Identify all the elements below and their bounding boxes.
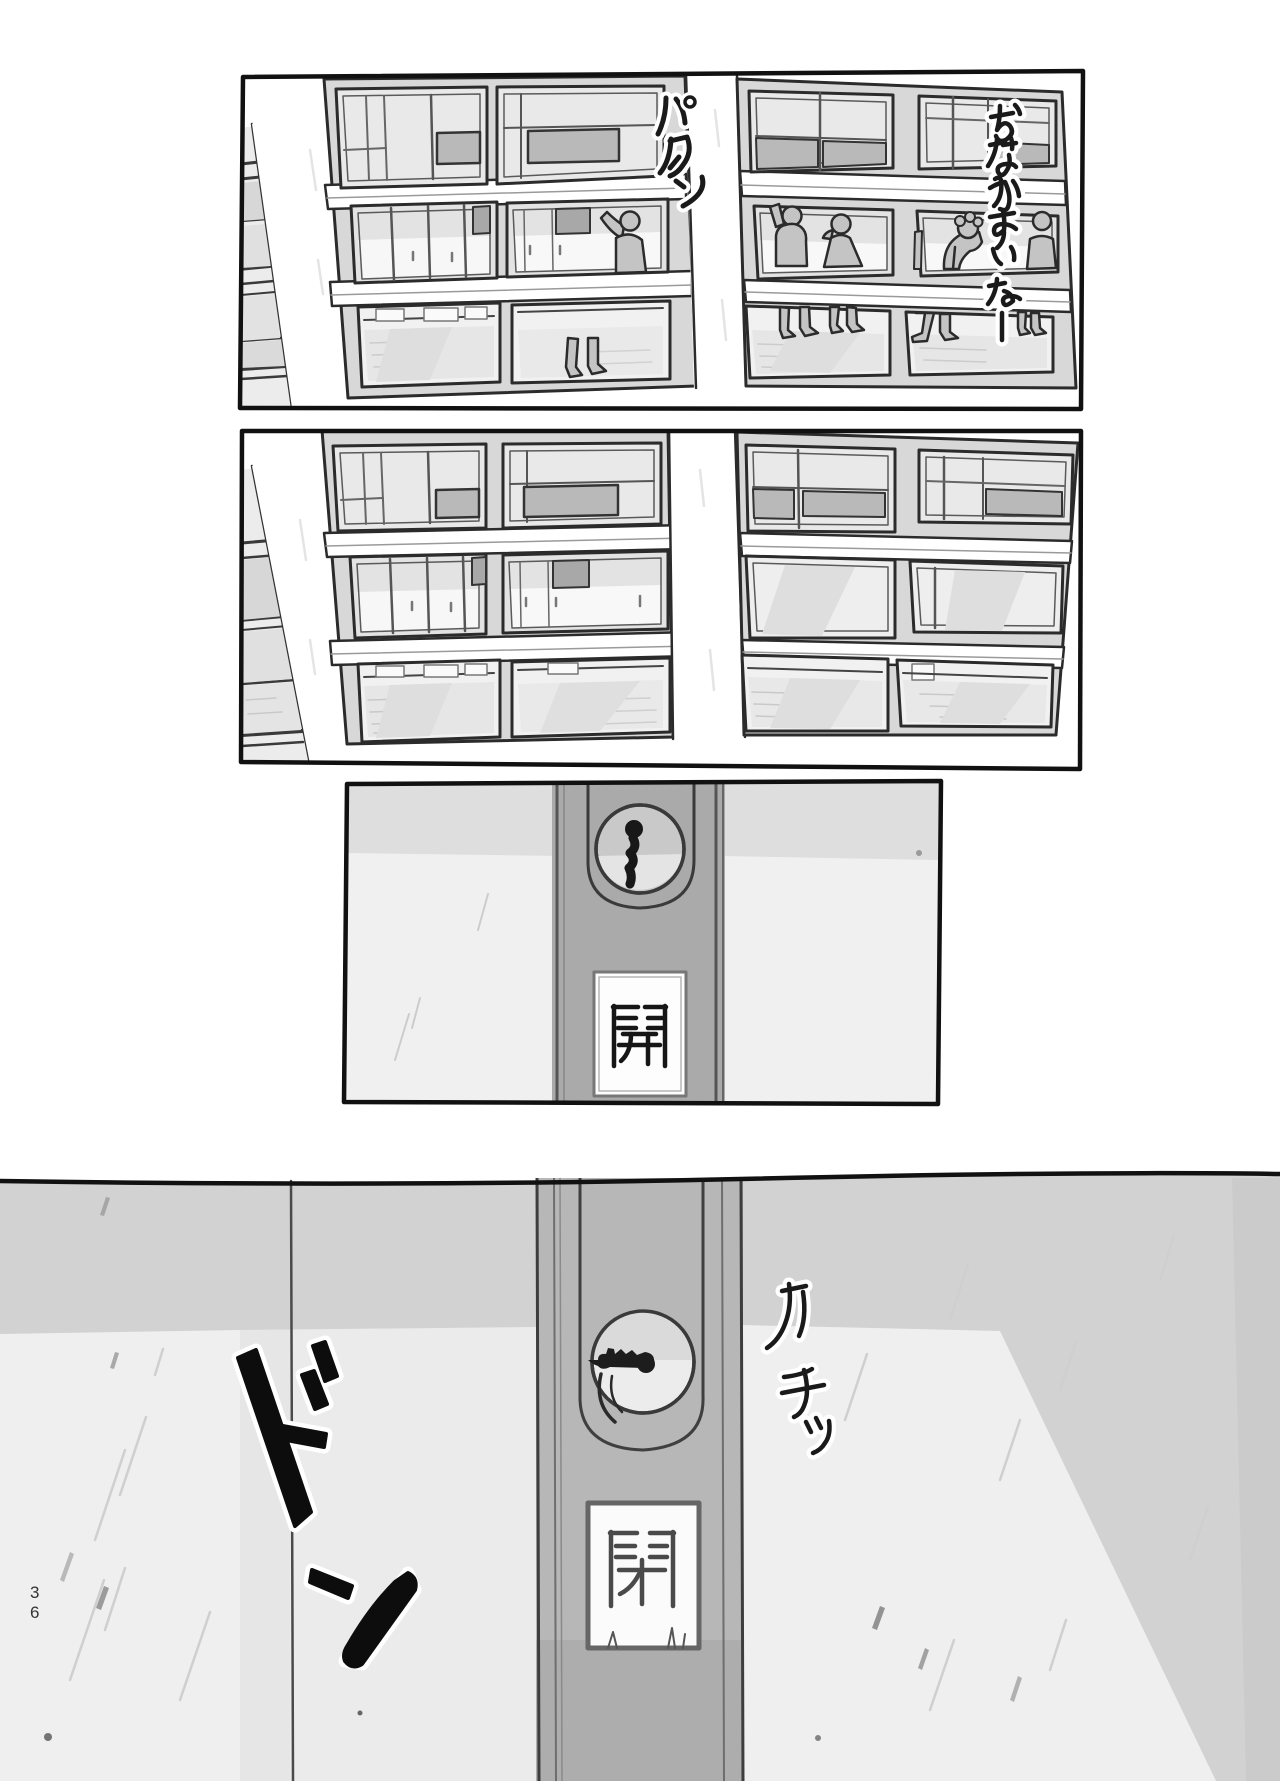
svg-text:6: 6 [30, 1603, 39, 1622]
svg-text:3: 3 [30, 1583, 39, 1602]
